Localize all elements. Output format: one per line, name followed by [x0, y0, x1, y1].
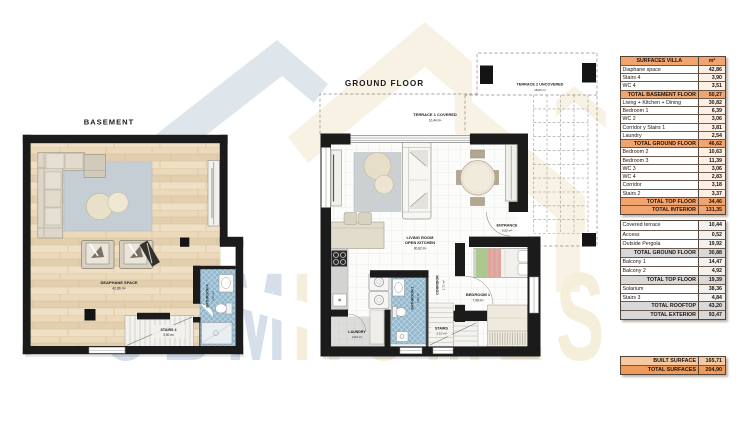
svg-text:2,64 m²: 2,64 m² [352, 335, 362, 339]
svg-text:TERRACE 2 UNCOVERED: TERRACE 2 UNCOVERED [517, 83, 564, 87]
svg-text:LAUNDRY: LAUNDRY [348, 330, 366, 334]
svg-text:30,82 m²: 30,82 m² [414, 247, 427, 251]
svg-text:STAIRS: STAIRS [435, 327, 449, 331]
svg-text:ENTRANCE: ENTRANCE [496, 224, 518, 228]
svg-text:BASEMENT: BASEMENT [84, 118, 135, 127]
svg-text:0,52 m²: 0,52 m² [502, 229, 512, 233]
svg-text:3,90 m²: 3,90 m² [163, 333, 174, 337]
svg-text:1,71 m²: 1,71 m² [442, 280, 446, 290]
svg-text:3,51 m²: 3,51 m² [211, 291, 215, 301]
svg-text:TERRACE 1 COVERED: TERRACE 1 COVERED [413, 112, 457, 117]
svg-text:BATHROOM 4: BATHROOM 4 [206, 284, 210, 307]
svg-text:GROUND FLOOR: GROUND FLOOR [345, 79, 424, 88]
svg-text:OPEN KITCHEN: OPEN KITCHEN [405, 240, 435, 245]
svg-text:2,10 m²: 2,10 m² [436, 332, 446, 336]
svg-text:CORRIDOR: CORRIDOR [436, 275, 440, 295]
svg-text:18,84 m²: 18,84 m² [534, 88, 546, 92]
svg-text:BEDROOM 1: BEDROOM 1 [466, 292, 491, 297]
svg-text:10,44 m²: 10,44 m² [429, 119, 442, 123]
svg-text:3,06 m²: 3,06 m² [416, 293, 420, 303]
svg-text:BATHROOM 1: BATHROOM 1 [411, 286, 415, 309]
svg-text:DEAPHANE SPACE: DEAPHANE SPACE [100, 280, 137, 285]
svg-text:42,86 m²: 42,86 m² [112, 287, 126, 291]
svg-text:7,98 m²: 7,98 m² [473, 299, 484, 303]
svg-text:STAIRS 4: STAIRS 4 [161, 328, 177, 332]
